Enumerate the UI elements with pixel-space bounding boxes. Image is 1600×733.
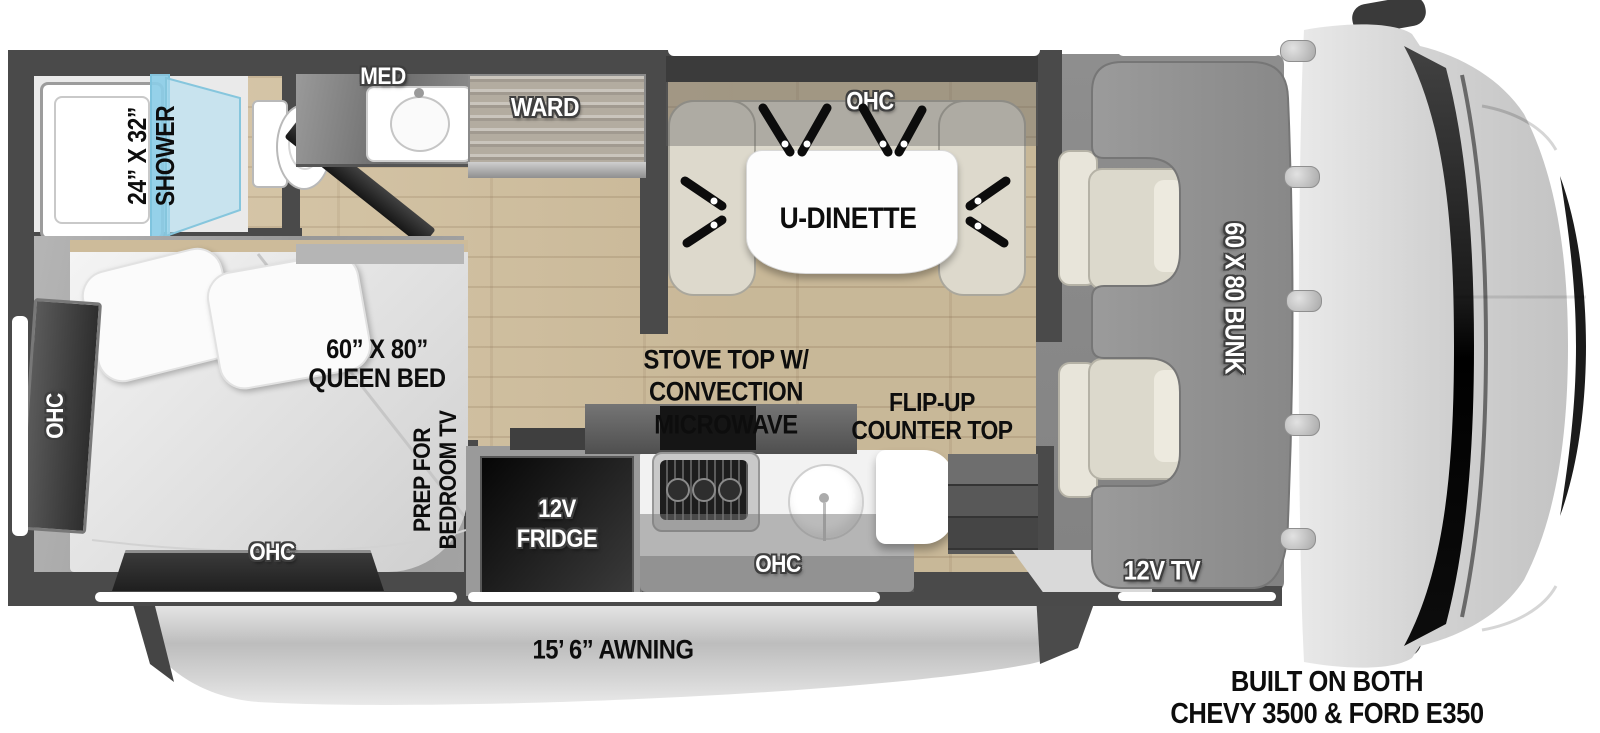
- rv-floorplan-diagram: 24” X 32” SHOWER MED WARD OHC U-DINETTE: [0, 0, 1600, 733]
- marker-light-4: [1284, 414, 1320, 436]
- cabover-bunk: [0, 0, 1600, 733]
- marker-light-3: [1286, 290, 1322, 312]
- chassis-label: BUILT ON BOTH CHEVY 3500 & FORD E350: [1170, 667, 1483, 731]
- awning-rail-right: [468, 592, 880, 602]
- marker-light-2: [1284, 166, 1320, 188]
- marker-light-5: [1280, 528, 1316, 550]
- awning-label: 15’ 6” AWNING: [532, 635, 693, 664]
- marker-light-1: [1280, 40, 1316, 62]
- awning-rail-left: [95, 592, 457, 602]
- entry-door-rail: [1118, 592, 1276, 601]
- cab-tv-label: 12V TV: [1124, 556, 1201, 585]
- bunk-label: 60 X 80 BUNK: [1219, 222, 1248, 374]
- bunk-front-rail: [1118, 46, 1280, 56]
- chassis-line1: BUILT ON BOTH: [1170, 667, 1483, 699]
- chassis-line2: CHEVY 3500 & FORD E350: [1170, 699, 1483, 731]
